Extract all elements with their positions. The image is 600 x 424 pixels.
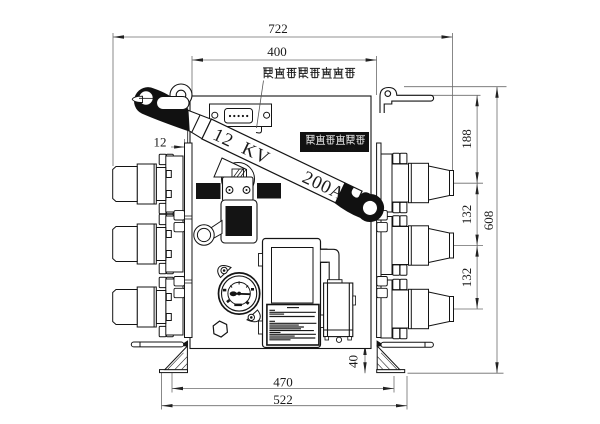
svg-text:132: 132 <box>459 268 474 288</box>
svg-text:722: 722 <box>268 21 288 36</box>
svg-text:12: 12 <box>154 135 167 150</box>
svg-text:132: 132 <box>459 205 474 225</box>
svg-text:400: 400 <box>267 44 287 59</box>
svg-text:470: 470 <box>273 375 293 390</box>
svg-text:By-pass load switch: By-pass load switch <box>312 147 356 153</box>
svg-text:608: 608 <box>481 211 496 231</box>
svg-text:522: 522 <box>273 392 293 407</box>
svg-text:188: 188 <box>459 129 474 149</box>
svg-text:40: 40 <box>346 355 361 368</box>
